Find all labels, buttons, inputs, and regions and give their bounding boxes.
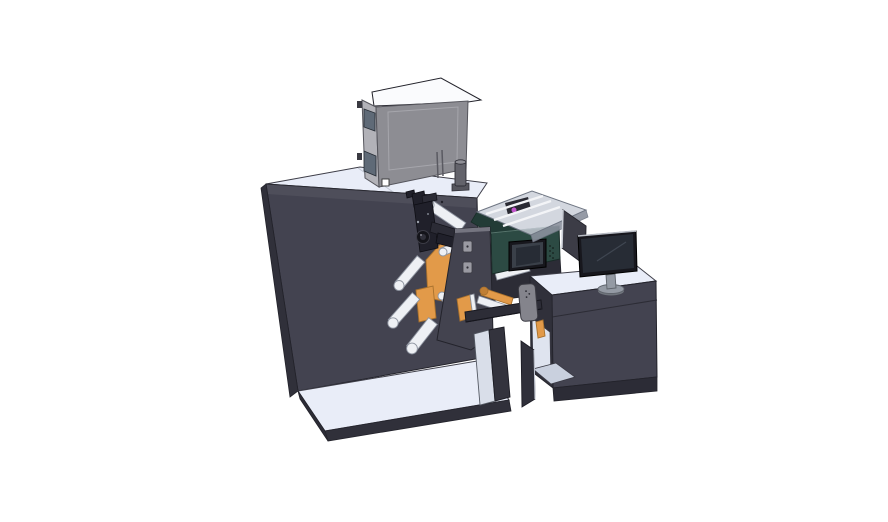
sensor-device-body — [518, 283, 538, 321]
mech-highlight — [420, 234, 422, 236]
machine-illustration — [0, 0, 888, 522]
cad-render-canvas — [0, 0, 888, 522]
guide-roller-cap — [439, 248, 447, 256]
panel-edge-highlight — [562, 210, 563, 248]
box-hinge-upper — [357, 101, 362, 108]
sensor-device — [518, 283, 538, 321]
box-corner-latch — [382, 179, 389, 186]
vent-dot — [552, 252, 554, 254]
operator-desk — [530, 266, 657, 401]
feeder-box — [357, 78, 481, 191]
canister-body — [455, 162, 466, 186]
orange-sliver — [536, 320, 545, 338]
guide-roller-cap — [394, 281, 404, 291]
screw-dot — [441, 201, 443, 203]
box-front-face — [376, 101, 468, 187]
mech-highlight — [427, 213, 429, 215]
box-hinge-lower — [357, 153, 362, 160]
canister-lid — [455, 160, 466, 164]
vent-dot — [549, 245, 551, 247]
vent-dot — [549, 250, 551, 252]
clamp-dot — [466, 245, 468, 247]
orange-plate-lower — [416, 286, 436, 322]
box-vent-slot — [437, 152, 438, 178]
box-vent-slot — [442, 150, 443, 176]
vent-dot — [552, 247, 554, 249]
clamp-dot — [466, 266, 468, 268]
desk-side-leg — [521, 341, 535, 407]
monitor-neck — [606, 274, 616, 289]
guide-roller-cap — [407, 343, 418, 354]
vent-dot — [552, 257, 554, 259]
guide-roller-cap — [388, 318, 398, 328]
rewind-roller-cap — [480, 287, 488, 295]
box-window-upper — [364, 109, 375, 131]
mech-highlight — [417, 221, 419, 223]
vent-dot — [549, 255, 551, 257]
